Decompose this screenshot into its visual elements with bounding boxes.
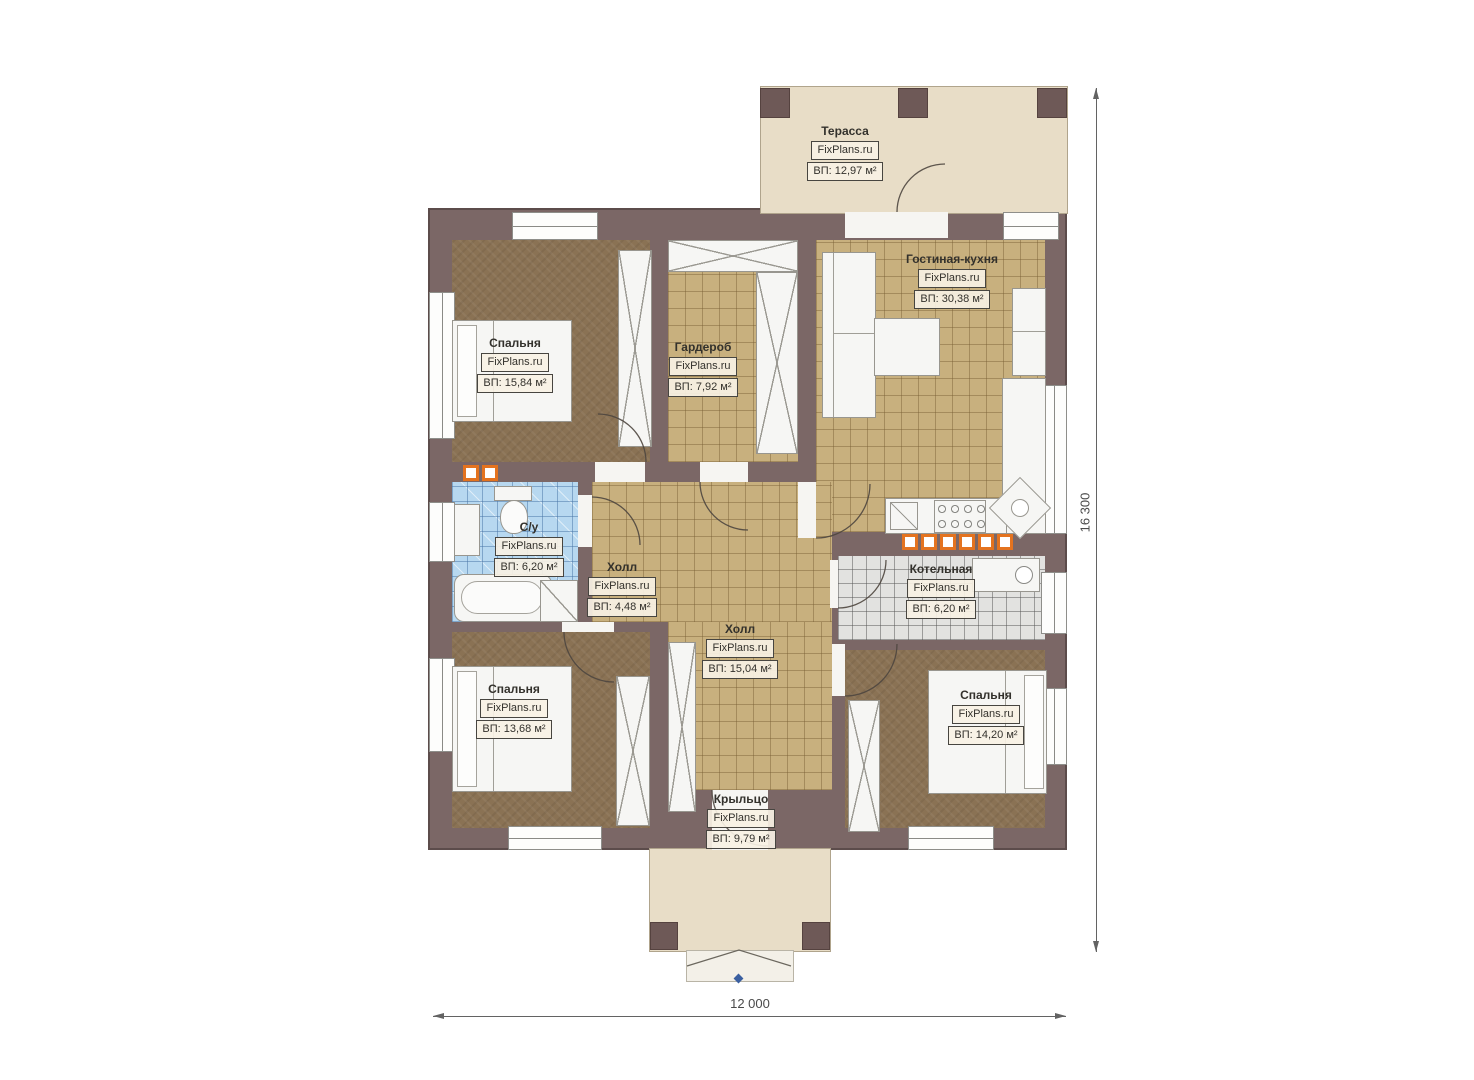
room-name: Крыльцо (714, 792, 769, 806)
room-area: ВП: 12,97 м² (807, 162, 882, 181)
window (508, 826, 602, 850)
room-label-wardrobe: Гардероб FixPlans.ru ВП: 7,92 м² (644, 340, 762, 397)
dimension-width-label: 12 000 (700, 996, 800, 1011)
room-name: Спальня (960, 688, 1012, 702)
room-name: Спальня (488, 682, 540, 696)
room-name: Холл (607, 560, 637, 574)
floor-plan: Терасса FixPlans.ru ВП: 12,97 м² Спальня… (0, 0, 1474, 1080)
door-opening-bedroom-bl (562, 622, 614, 632)
room-label-living-kitchen: Гостиная-кухня FixPlans.ru ВП: 30,38 м² (888, 252, 1016, 309)
brand-label: FixPlans.ru (481, 353, 548, 372)
dimension-arrow (1093, 88, 1099, 99)
room-name: Гардероб (675, 340, 732, 354)
room-area: ВП: 6,20 м² (906, 600, 975, 619)
door-opening-bedroom-br (832, 644, 845, 696)
tall-cabinet-icon (1012, 288, 1046, 376)
brand-label: FixPlans.ru (588, 577, 655, 596)
room-name: Холл (725, 622, 755, 636)
room-area: ВП: 4,48 м² (587, 598, 656, 617)
dishwasher-icon (890, 502, 918, 530)
room-area: ВП: 6,20 м² (494, 558, 563, 577)
radiator-icon (902, 534, 1013, 550)
wardrobe-cabinet-icon (756, 272, 798, 454)
door-opening-living (798, 482, 816, 538)
room-label-bedroom-bl: Спальня FixPlans.ru ВП: 13,68 м² (455, 682, 573, 739)
terrace-pillar (898, 88, 928, 118)
window (908, 826, 994, 850)
brand-label: FixPlans.ru (706, 639, 773, 658)
room-label-terrace: Терасса FixPlans.ru ВП: 12,97 м² (782, 124, 908, 181)
sofa-icon (822, 252, 876, 418)
room-label-bedroom-br: Спальня FixPlans.ru ВП: 14,20 м² (926, 688, 1046, 745)
terrace-door-opening (845, 212, 948, 238)
table-icon (874, 318, 940, 376)
dimension-line-width (433, 1016, 1066, 1017)
brand-label: FixPlans.ru (952, 705, 1019, 724)
window (1041, 572, 1067, 634)
brand-label: FixPlans.ru (669, 357, 736, 376)
door-opening-bedroom-tl (595, 462, 645, 482)
room-area: ВП: 13,68 м² (476, 720, 551, 739)
wardrobe-cabinet-icon (668, 240, 798, 272)
room-area: ВП: 14,20 м² (948, 726, 1023, 745)
dimension-arrow (1055, 1013, 1066, 1019)
terrace-pillar (1037, 88, 1067, 118)
room-area: ВП: 9,79 м² (706, 830, 775, 849)
room-label-hall-main: Холл FixPlans.ru ВП: 15,04 м² (680, 622, 800, 679)
porch-pillar (802, 922, 830, 950)
window (512, 212, 598, 240)
room-area: ВП: 7,92 м² (668, 378, 737, 397)
brand-label: FixPlans.ru (907, 579, 974, 598)
room-label-hall-small: Холл FixPlans.ru ВП: 4,48 м² (564, 560, 680, 617)
room-label-bedroom-tl: Спальня FixPlans.ru ВП: 15,84 м² (452, 336, 578, 393)
bathtub-icon (454, 574, 552, 622)
room-name: Терасса (821, 124, 869, 138)
brand-label: FixPlans.ru (918, 269, 985, 288)
room-label-boiler: Котельная FixPlans.ru ВП: 6,20 м² (882, 562, 1000, 619)
room-name: Гостиная-кухня (906, 252, 998, 266)
room-area: ВП: 30,38 м² (914, 290, 989, 309)
room-label-porch: Крыльцо FixPlans.ru ВП: 9,79 м² (682, 792, 800, 849)
towel-radiator-icon (463, 465, 498, 481)
room-name: Спальня (489, 336, 541, 350)
brand-label: FixPlans.ru (811, 141, 878, 160)
window (429, 502, 455, 562)
dimension-line-height (1096, 88, 1097, 952)
dimension-arrow (1093, 941, 1099, 952)
porch-pillar (650, 922, 678, 950)
dimension-arrow (433, 1013, 444, 1019)
room-name: С/у (520, 520, 539, 534)
terrace-pillar (760, 88, 790, 118)
door-opening-wardrobe (700, 462, 748, 482)
toilet-icon (494, 486, 532, 501)
wardrobe-cabinet-icon (848, 700, 880, 832)
dimension-height-label: 16 300 (1078, 478, 1093, 548)
brand-label: FixPlans.ru (707, 809, 774, 828)
room-name: Котельная (910, 562, 973, 576)
room-area: ВП: 15,04 м² (702, 660, 777, 679)
brand-label: FixPlans.ru (495, 537, 562, 556)
brand-label: FixPlans.ru (480, 699, 547, 718)
door-opening-boiler (830, 560, 838, 608)
room-area: ВП: 15,84 м² (477, 374, 552, 393)
stove-icon (934, 500, 986, 533)
window (1003, 212, 1059, 240)
wardrobe-cabinet-icon (616, 676, 650, 826)
